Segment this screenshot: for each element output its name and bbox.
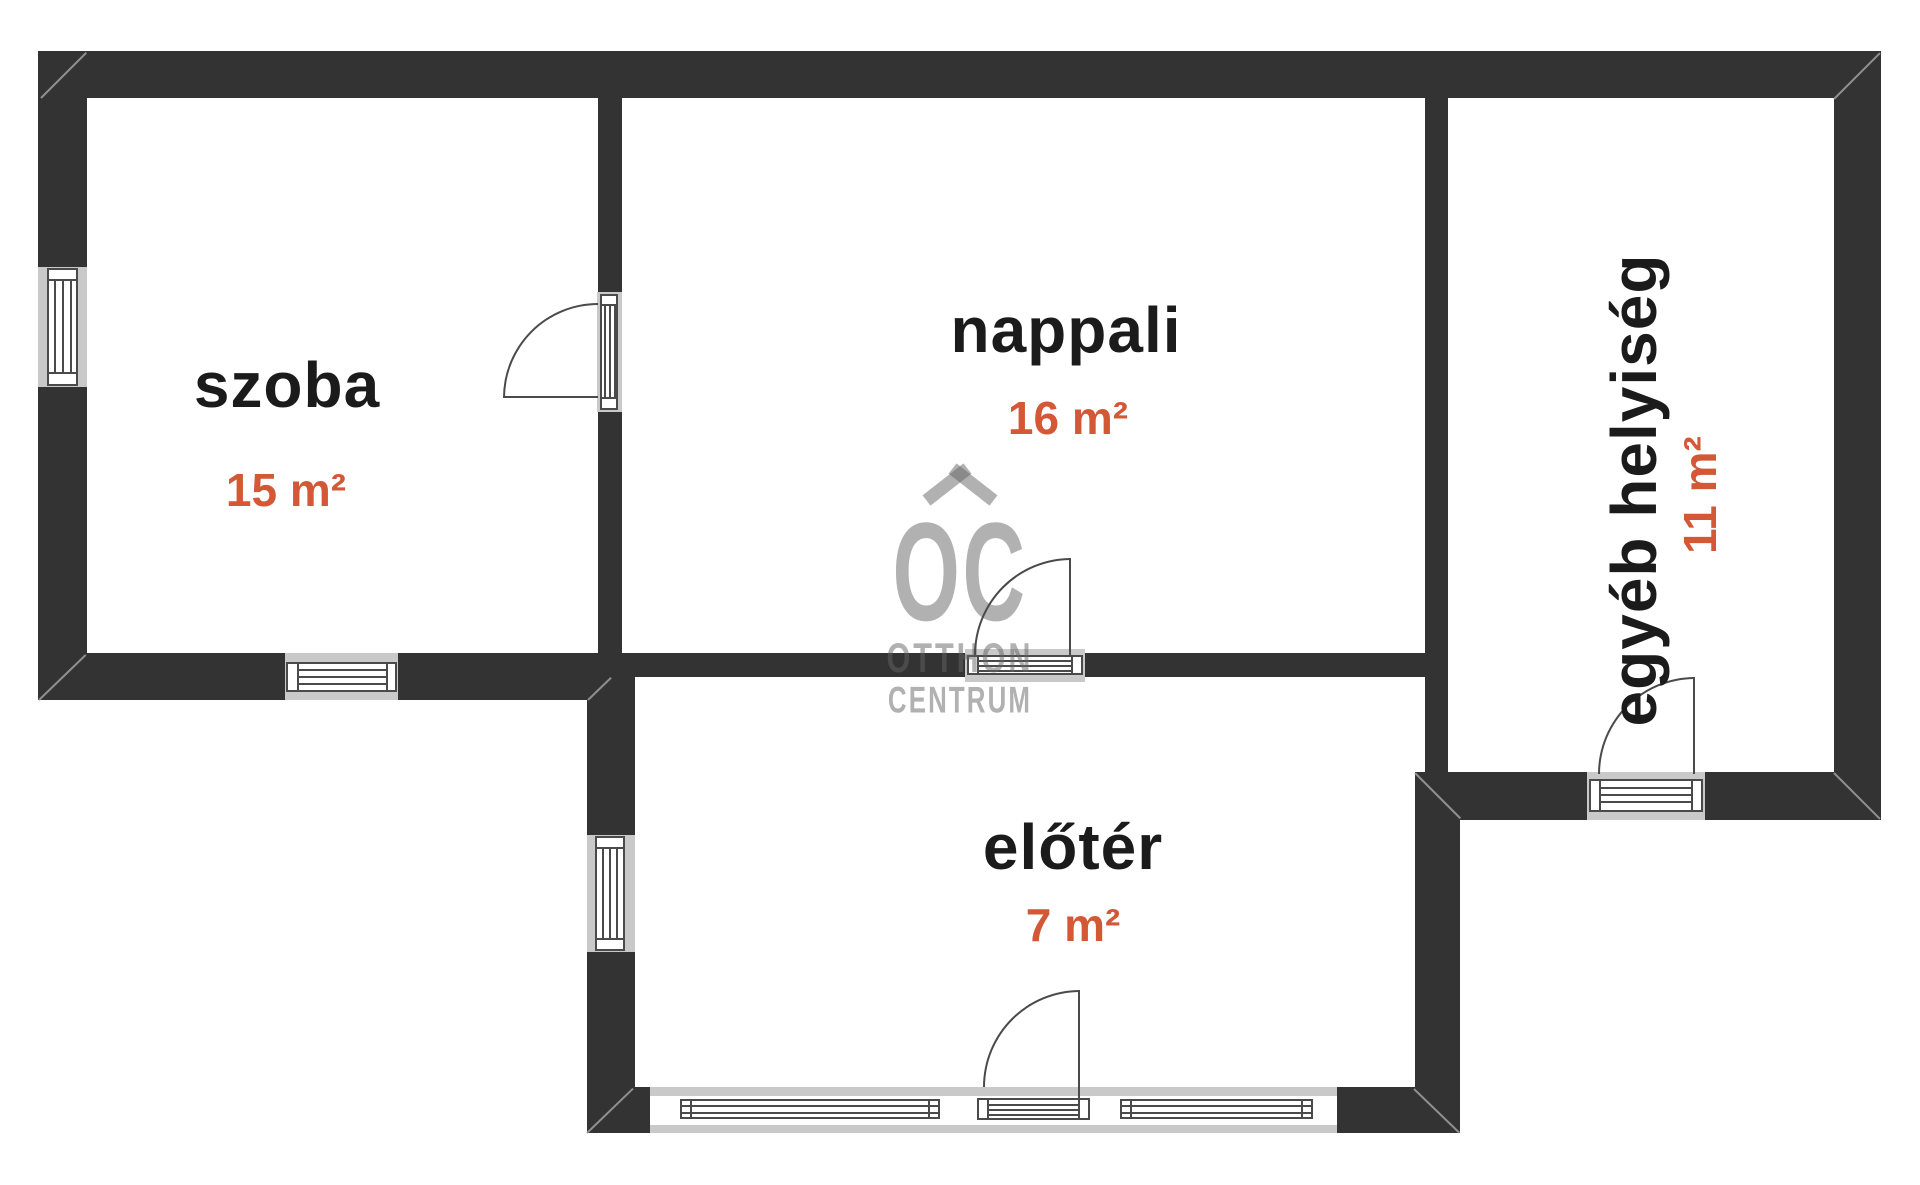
- window-entrance-right-bar: [1301, 1100, 1303, 1118]
- window-eloter-left-pane-line: [602, 849, 604, 938]
- door-entrance-threshold-line: [989, 1114, 1078, 1116]
- window-entrance-left-bar: [690, 1100, 692, 1118]
- room-area-nappali: 16 m²: [1008, 391, 1128, 445]
- door-egyeb-jamb-line: [1601, 794, 1691, 796]
- window-entrance-right-bar: [1130, 1100, 1132, 1118]
- door-egyeb-jamb-line: [1601, 787, 1691, 789]
- wall-szoba-bottom-right: [398, 653, 635, 700]
- window-entrance-left-pane-line: [682, 1105, 938, 1107]
- door-szoba-jamb-line: [614, 306, 616, 397]
- door-egyeb-jamb-bar: [1691, 780, 1693, 811]
- door-entrance-threshold-bar: [1078, 1099, 1080, 1119]
- door-entrance-swing-arc: [983, 990, 1080, 1087]
- room-label-eloter: előtér: [983, 810, 1163, 884]
- window-entrance-right-pane-line: [1122, 1105, 1311, 1107]
- window-entrance-left-bar: [928, 1100, 930, 1118]
- wall-szoba-bottom-left: [38, 653, 285, 700]
- window-szoba-bottom-pane-line: [299, 669, 386, 671]
- wall-eloter-left-lower: [587, 952, 635, 1087]
- wall-nappali-egyeb: [1425, 98, 1448, 772]
- window-szoba-left-bar-bottom: [47, 372, 78, 374]
- wall-bottom-corner-left-block: [587, 1087, 650, 1133]
- door-nappali-jamb-bar: [1071, 656, 1073, 674]
- window-szoba-left-pane-line: [62, 281, 64, 372]
- room-area-eloter: 7 m²: [1026, 898, 1121, 952]
- window-entrance-right-pane-line: [1122, 1112, 1311, 1114]
- window-eloter-left-pane-line: [616, 849, 618, 938]
- door-szoba-jamb-line: [604, 306, 606, 397]
- wall-left-upper: [38, 98, 87, 267]
- wall-nappali-bottom-right: [1085, 653, 1448, 677]
- window-szoba-bottom-pane-line: [299, 676, 386, 678]
- window-entrance-right: [1120, 1099, 1313, 1119]
- wall-top: [38, 51, 1881, 98]
- watermark-line2: CENTRUM: [888, 682, 1032, 719]
- window-entrance-left-pane-line: [682, 1112, 938, 1114]
- wall-eloter-right-outer: [1415, 772, 1460, 1087]
- wall-szoba-nappali-lower: [598, 412, 622, 653]
- window-eloter-left-bar-bottom: [595, 938, 625, 940]
- door-entrance-threshold-line: [989, 1109, 1078, 1111]
- window-entrance-left: [680, 1099, 940, 1119]
- window-szoba-bottom-pane-line: [299, 683, 386, 685]
- door-egyeb-jamb-line: [1601, 801, 1691, 803]
- window-szoba-left-pane-line: [54, 281, 56, 372]
- wall-eloter-left-upper: [587, 700, 635, 835]
- room-area-szoba: 15 m²: [226, 463, 346, 517]
- door-szoba-jamb-bar: [600, 397, 618, 399]
- door-szoba-jamb-line: [609, 306, 611, 397]
- room-area-egyeb-helyiseg: 11 m²: [1673, 436, 1727, 554]
- wall-szoba-nappali-upper: [598, 98, 622, 292]
- window-szoba-bottom-bar-right: [386, 663, 388, 691]
- room-label-egyeb-helyiseg: egyéb helyiség: [1597, 254, 1671, 727]
- room-label-szoba: szoba: [194, 348, 380, 422]
- room-label-nappali: nappali: [950, 293, 1181, 367]
- window-eloter-left-pane-line: [609, 849, 611, 938]
- window-szoba-left-pane-line: [70, 281, 72, 372]
- wall-bottom-corner-right-block: [1337, 1087, 1460, 1133]
- floor-plan: OC OTTHON CENTRUM szoba 15 m² nappali 16…: [0, 0, 1920, 1185]
- wall-right-outer: [1834, 98, 1881, 772]
- door-szoba-swing-arc: [503, 303, 598, 398]
- door-entrance-threshold-line: [989, 1104, 1078, 1106]
